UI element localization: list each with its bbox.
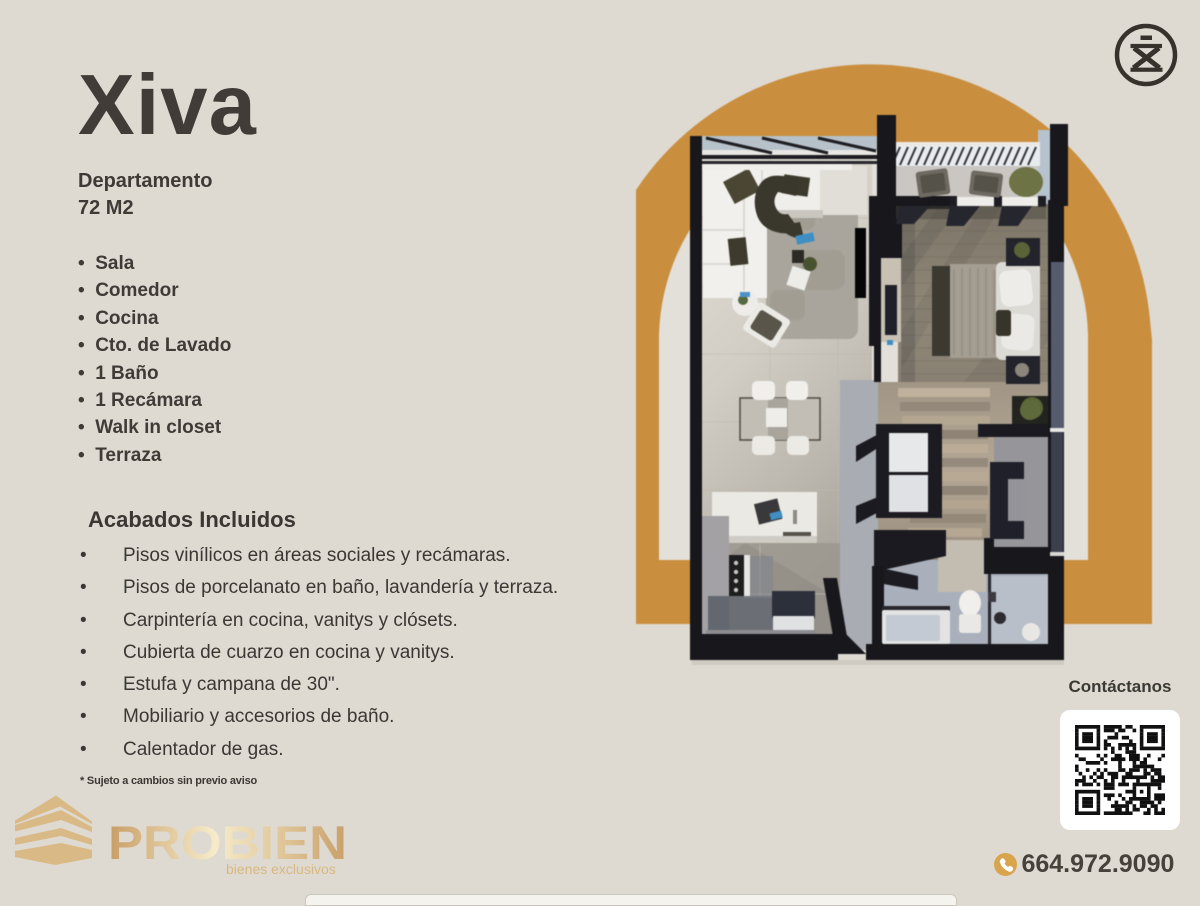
svg-text:bienes exclusivos: bienes exclusivos [226,861,336,877]
